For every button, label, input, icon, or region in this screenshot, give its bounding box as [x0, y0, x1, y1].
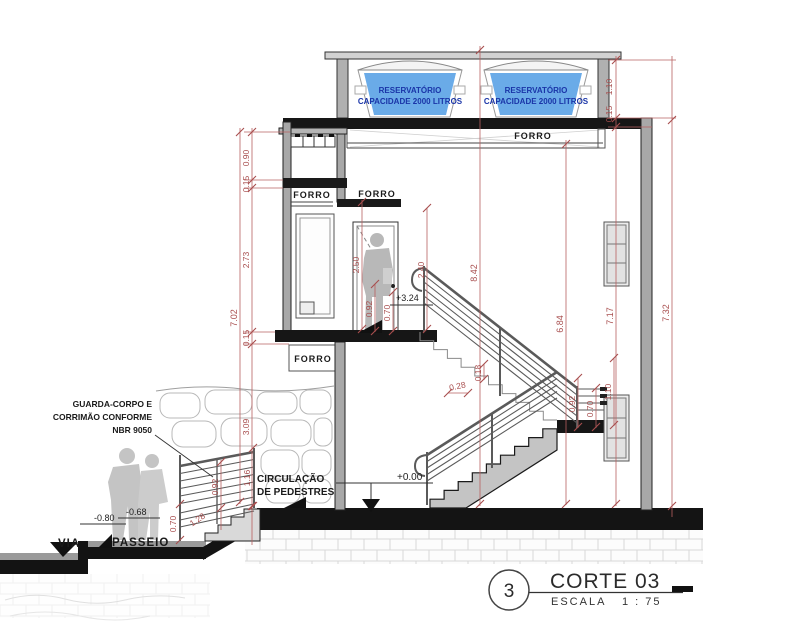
tank-lid	[484, 61, 588, 70]
dim-entry-rail-height: 1.16	[242, 469, 252, 486]
dim-stair-tread: 0.28	[448, 379, 467, 392]
tank1-label-line2: CAPACIDADE 2000 LITROS	[358, 97, 463, 106]
window-lower	[604, 395, 629, 461]
window-glass	[607, 398, 626, 458]
section-drawing-sheet: RESERVATÓRIO CAPACIDADE 2000 LITROS RESE…	[0, 0, 800, 626]
roof-slab	[325, 52, 621, 59]
forro-label-upper: FORRO	[514, 131, 552, 141]
stairs-upper-flight-outline	[420, 332, 557, 420]
forro-label-hall: FORRO	[358, 189, 396, 199]
note-leader-line	[155, 435, 213, 477]
level-street: -0.80	[94, 513, 115, 523]
tank-ledge	[580, 86, 591, 94]
circulation-label-line1: CIRCULAÇÃO	[257, 472, 324, 485]
title-block: 3 CORTE 03 ESCALA 1 : 75	[489, 570, 693, 610]
guardrail-note-line2: CORRIMÃO CONFORME	[53, 412, 152, 422]
window-glass	[607, 225, 626, 283]
forro-label-tower: FORRO	[293, 190, 331, 200]
level-upper-floor: +3.24	[396, 293, 419, 303]
water-tank-2: RESERVATÓRIO CAPACIDADE 2000 LITROS	[481, 61, 591, 117]
dim-overall-inner-height: 8.42	[469, 264, 479, 282]
rail-anchor	[600, 401, 607, 405]
dim-landing-guard-low: 0.70	[382, 304, 392, 321]
section-title: CORTE 03	[550, 570, 660, 593]
road-base-slab	[0, 560, 88, 574]
elevator-car	[296, 214, 334, 318]
dim-roof-slab: 0.15	[604, 105, 614, 122]
dim-tower-beam: 0.15	[241, 175, 251, 192]
circulation-label-line2: DE PEDESTRES	[257, 487, 335, 498]
front-wall	[335, 342, 345, 510]
guardrail-note-line1: GUARDA-CORPO E	[73, 399, 153, 409]
dim-landing-window: 1.10	[603, 383, 613, 400]
paver-pattern-right	[245, 530, 703, 564]
level-sidewalk: -0.68	[126, 507, 147, 517]
reservoir-room: RESERVATÓRIO CAPACIDADE 2000 LITROS RESE…	[283, 52, 652, 129]
forro-label-ground: FORRO	[294, 354, 332, 364]
shaft-right-wall	[337, 134, 345, 202]
ground-floor-slab	[257, 508, 703, 530]
dim-door-height: 2.50	[351, 256, 361, 273]
reservoir-floor-slab	[283, 118, 652, 129]
dim-landing-guard-high: 0.92	[364, 300, 374, 317]
tower-left-wall	[283, 122, 291, 340]
dim-ground-storey: 3.09	[241, 418, 251, 435]
water-tank-1: RESERVATÓRIO CAPACIDADE 2000 LITROS	[355, 61, 465, 117]
ceiling-brace-lines	[350, 130, 600, 147]
machine-room-joists	[291, 136, 335, 147]
scale-value: 1 : 75	[622, 596, 662, 608]
scale-label: ESCALA	[551, 596, 606, 608]
dim-tower-floor-height: 2.73	[241, 251, 251, 268]
pedestrian-silhouettes	[108, 448, 168, 540]
dim-right-outer-height: 7.32	[661, 304, 671, 322]
tank-ledge	[454, 86, 465, 94]
floor-slab-324	[275, 330, 437, 342]
via-label: VIA	[58, 538, 80, 550]
tank-lid	[358, 61, 462, 70]
door-head-beam	[337, 199, 401, 207]
guardrail-note-line3: NBR 9050	[112, 425, 152, 435]
dim-stair-riser: 0.18	[473, 364, 483, 381]
dim-right-inner-height: 7.17	[605, 307, 615, 325]
section-number: 3	[504, 581, 515, 602]
right-wall	[641, 118, 652, 510]
dim-entry-steps-run: 1.28	[188, 511, 208, 529]
tank-ledge	[481, 86, 492, 94]
elevator-car-sill	[300, 302, 314, 314]
tank-ledge	[355, 86, 366, 94]
passeio-label: PASSEIO	[112, 537, 169, 549]
title-end-dash	[672, 586, 693, 592]
tower-beam	[283, 178, 347, 188]
tank2-label-line1: RESERVATÓRIO	[505, 86, 568, 95]
door-knob	[391, 284, 395, 288]
tank1-label-line1: RESERVATÓRIO	[379, 86, 442, 95]
window-upper	[604, 222, 629, 286]
tank2-label-line2: CAPACIDADE 2000 LITROS	[484, 97, 589, 106]
reservoir-room-left-wall	[337, 59, 348, 118]
dim-tower-roof-to-beam: 0.90	[241, 149, 251, 166]
dim-stair-guard-low: 0.70	[585, 400, 595, 417]
dim-reservoir-room-height: 1.10	[604, 78, 614, 95]
dim-stair-guard-high: 0.92	[567, 395, 577, 412]
paver-pattern-left	[0, 574, 210, 618]
section-drawing: RESERVATÓRIO CAPACIDADE 2000 LITROS RESE…	[0, 0, 800, 626]
dim-upper-slab: 0.15	[241, 329, 251, 346]
dim-entry-rail-low: 0.70	[168, 515, 178, 532]
dim-entry-rail-mid: 0.92	[210, 478, 220, 495]
level-ground-floor: +0.00	[397, 472, 423, 483]
dim-tower-total: 7.02	[229, 309, 239, 327]
dim-hall-height: 6.84	[555, 315, 565, 333]
road-surface	[0, 553, 88, 560]
dim-door-head-to-floor: 2.40	[416, 261, 426, 278]
ceiling-hanger	[598, 129, 605, 148]
